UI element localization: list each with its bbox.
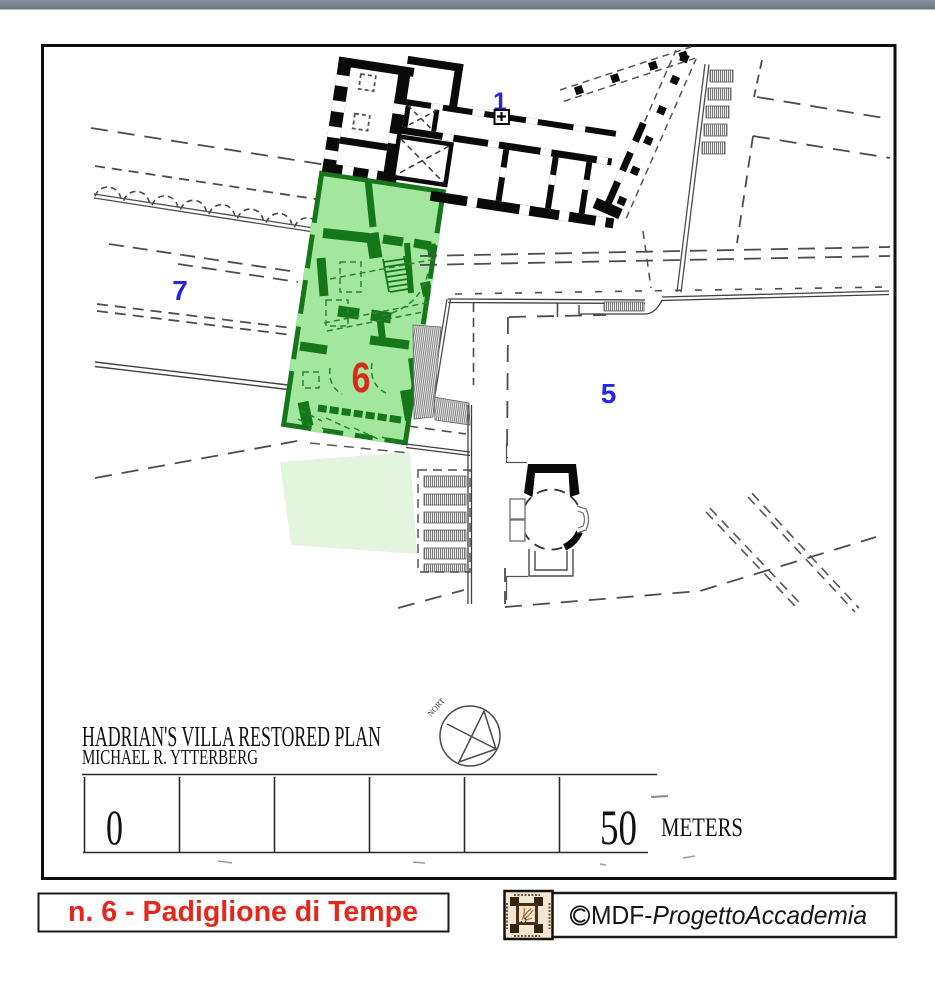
svg-text:50: 50 (600, 799, 637, 855)
svg-text:7: 7 (172, 275, 188, 306)
svg-text:n. 6 - Padiglione di Tempe: n. 6 - Padiglione di Tempe (68, 896, 418, 928)
svg-text:METERS: METERS (661, 813, 743, 842)
svg-text:6: 6 (352, 354, 371, 402)
svg-text:0: 0 (106, 799, 123, 855)
svg-text:MDF-ProgettoAccademia: MDF-ProgettoAccademia (591, 900, 867, 930)
svg-text:5: 5 (601, 378, 617, 409)
svg-text:MICHAEL R. YTTERBERG: MICHAEL R. YTTERBERG (82, 745, 258, 769)
